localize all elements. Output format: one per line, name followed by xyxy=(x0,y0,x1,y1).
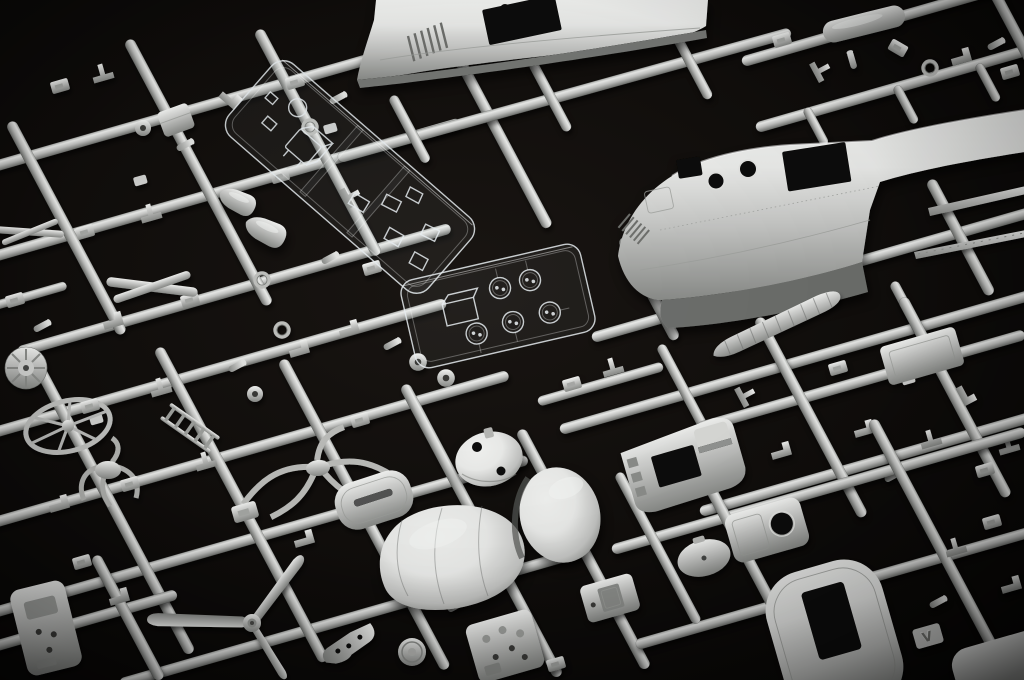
photo-canvas: V V xyxy=(0,0,1024,680)
porthole-cutout xyxy=(709,174,724,189)
porthole-cutout xyxy=(500,4,510,14)
porthole-cutout xyxy=(536,2,546,12)
molded-logo-medallion xyxy=(398,638,426,666)
sprue-part xyxy=(437,369,455,387)
sprue-part xyxy=(247,386,263,402)
sprue-part xyxy=(135,120,151,136)
porthole-cutout xyxy=(740,161,756,177)
window-cutout xyxy=(676,156,703,179)
kit-photo: V V xyxy=(0,0,1024,680)
engine-fan-part xyxy=(5,347,47,389)
